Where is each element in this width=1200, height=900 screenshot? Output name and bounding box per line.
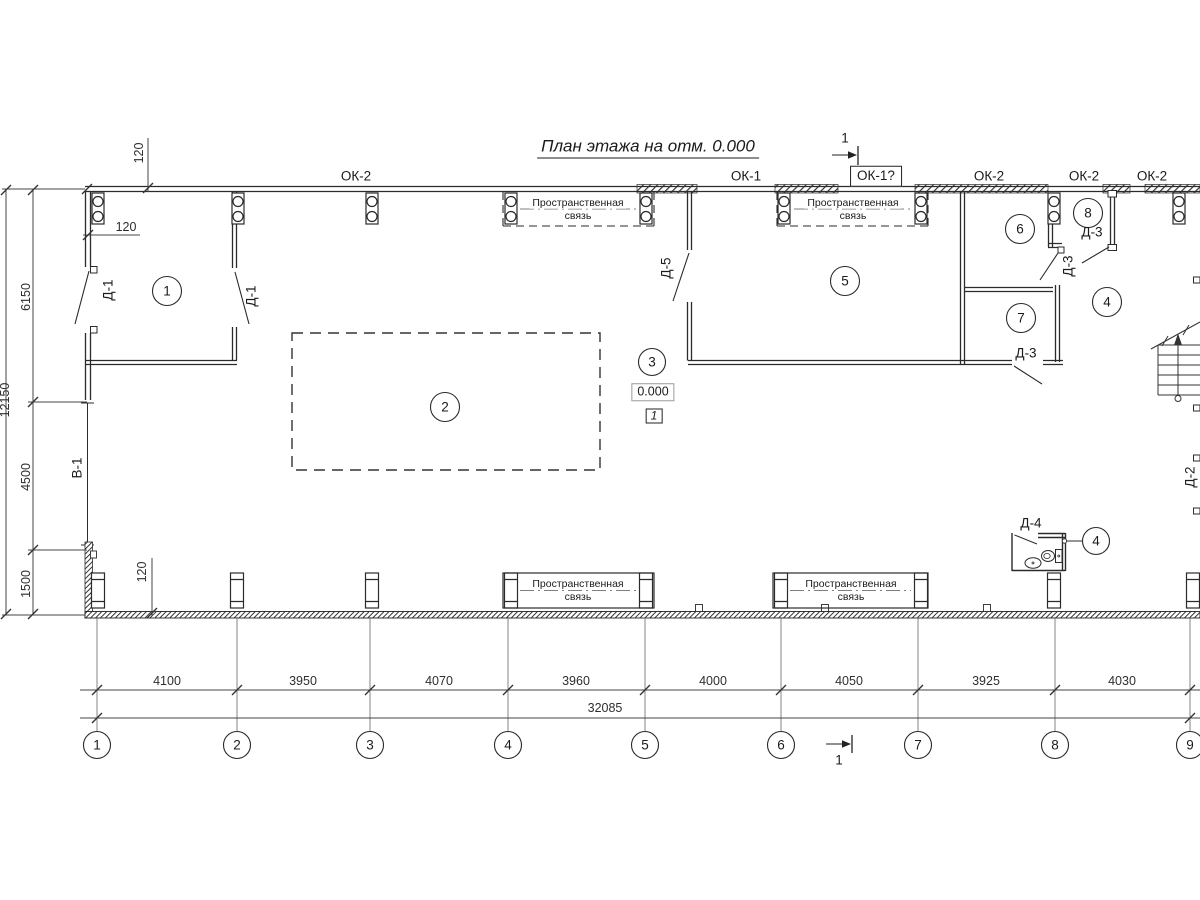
floor-plan-page: План этажа на отм. 0.000 ОК-2 ОК-1 ОК-1?… xyxy=(0,0,1200,900)
dim-bottom-4030: 4030 xyxy=(1108,675,1136,688)
spatial-tie-bottom2-line2: связь xyxy=(835,592,868,603)
section-mark-bottom-label: 1 xyxy=(835,753,843,767)
grid-axis-2: 2 xyxy=(233,738,241,752)
dim-offset-left-120: 120 xyxy=(116,221,137,234)
node-mark: 1 xyxy=(646,409,663,424)
grid-axis-9: 9 xyxy=(1186,738,1194,752)
door-label-d1-left: Д-1 xyxy=(101,279,115,300)
dimension-ticks xyxy=(1,183,1195,723)
dim-bottom-4050: 4050 xyxy=(835,675,863,688)
grid-axis-4: 4 xyxy=(504,738,512,752)
dim-offset-bottom-120: 120 xyxy=(136,562,149,583)
stairs xyxy=(1151,322,1200,402)
spatial-tie-bottom1-line2: связь xyxy=(562,592,595,603)
room-number-5: 5 xyxy=(841,274,849,288)
dim-left-total: 12150 xyxy=(0,383,11,418)
window-label-ok1: ОК-1 xyxy=(731,169,761,183)
door-label-d5: Д-5 xyxy=(659,257,673,278)
spatial-tie-top2-line2: связь xyxy=(837,211,870,222)
gate-label-v1: В-1 xyxy=(70,457,84,478)
door-label-d3-c: Д-3 xyxy=(1015,346,1036,360)
dim-bottom-4070: 4070 xyxy=(425,675,453,688)
room-number-2: 2 xyxy=(441,400,449,414)
section-mark-top-label: 1 xyxy=(841,131,849,145)
window-label-ok1-query: ОК-1? xyxy=(850,166,902,187)
spatial-tie-top1-line2: связь xyxy=(562,211,595,222)
dim-bottom-3950: 3950 xyxy=(289,675,317,688)
toilet-symbol xyxy=(1042,550,1063,563)
spatial-tie-boxes xyxy=(503,192,928,608)
door-label-d2: Д-2 xyxy=(1183,466,1197,487)
grid-lines xyxy=(97,617,1190,731)
room-number-3: 3 xyxy=(648,355,656,369)
room-number-1: 1 xyxy=(163,284,171,298)
dim-left-6150: 6150 xyxy=(20,283,33,311)
spatial-tie-bottom2-line1: Пространственная xyxy=(802,579,899,590)
dim-offset-top-120: 120 xyxy=(133,143,146,164)
grid-axis-7: 7 xyxy=(914,738,922,752)
elevation-mark: 0.000 xyxy=(631,383,674,401)
dim-bottom-4100: 4100 xyxy=(153,675,181,688)
dim-bottom-3925: 3925 xyxy=(972,675,1000,688)
window-label-ok2-left: ОК-2 xyxy=(341,169,371,183)
door-label-d1-right: Д-1 xyxy=(244,285,258,306)
sink-symbol xyxy=(1025,558,1041,568)
door-label-d4: Д-4 xyxy=(1020,516,1041,530)
grid-axis-6: 6 xyxy=(777,738,785,752)
room-number-6: 6 xyxy=(1016,222,1024,236)
grid-axis-1: 1 xyxy=(93,738,101,752)
section-mark-top xyxy=(832,146,858,165)
grid-axis-3: 3 xyxy=(366,738,374,752)
dim-bottom-4000: 4000 xyxy=(699,675,727,688)
door-label-d3-b: Д-3 xyxy=(1081,225,1102,239)
door-leaves xyxy=(75,247,1109,384)
room-circles xyxy=(153,199,1122,555)
dim-left-1500: 1500 xyxy=(20,570,33,598)
spatial-tie-top2-line1: Пространственная xyxy=(804,198,901,209)
wc-room xyxy=(1012,533,1084,571)
section-mark-bottom xyxy=(826,735,852,753)
spatial-tie-bottom1-line1: Пространственная xyxy=(529,579,626,590)
floor-plan-drawing xyxy=(0,0,1200,900)
room-number-8: 8 xyxy=(1084,206,1092,220)
window-label-ok2-c: ОК-2 xyxy=(1137,169,1167,183)
dim-left-4500: 4500 xyxy=(20,463,33,491)
window-label-ok2-a: ОК-2 xyxy=(974,169,1004,183)
spatial-tie-top1-line1: Пространственная xyxy=(529,198,626,209)
grid-axis-5: 5 xyxy=(641,738,649,752)
room-number-4: 4 xyxy=(1103,295,1111,309)
room-number-7: 7 xyxy=(1017,311,1025,325)
wc-callout-number: 4 xyxy=(1092,534,1100,548)
grid-axis-8: 8 xyxy=(1051,738,1059,752)
window-label-ok2-b: ОК-2 xyxy=(1069,169,1099,183)
dim-bottom-total: 32085 xyxy=(588,702,623,715)
bottom-columns xyxy=(92,573,1200,608)
drawing-title: План этажа на отм. 0.000 xyxy=(537,138,759,159)
dim-bottom-3960: 3960 xyxy=(562,675,590,688)
door-label-d3-a: Д-3 xyxy=(1061,255,1075,276)
